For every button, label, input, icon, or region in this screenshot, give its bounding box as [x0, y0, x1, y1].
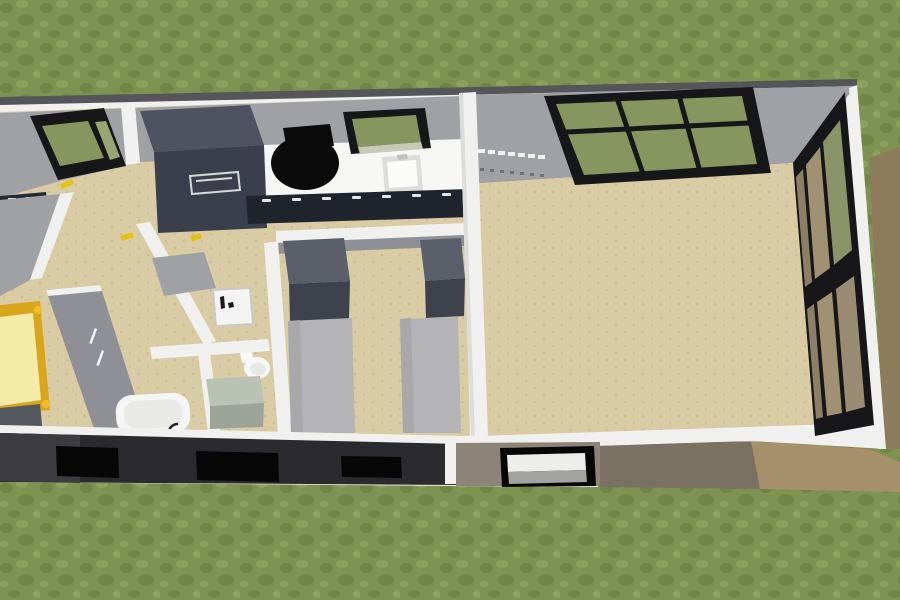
- wall-mark: [478, 149, 485, 153]
- kitchen-sink[interactable]: [382, 154, 423, 192]
- wardrobe-front: [289, 281, 350, 322]
- wall-dot: [520, 172, 524, 175]
- sink-window-glass: [352, 115, 421, 147]
- wardrobe-front: [425, 278, 465, 318]
- big-back-window[interactable]: [544, 87, 771, 185]
- vanity-top: [206, 376, 264, 406]
- wall-mark: [518, 153, 525, 157]
- bed-1[interactable]: [288, 318, 355, 434]
- front-window-3: [341, 456, 402, 478]
- floor-plan-3d-canvas[interactable]: [0, 0, 900, 600]
- bed-knob: [34, 306, 42, 314]
- wall-mark: [538, 155, 545, 159]
- wall-mark: [508, 152, 515, 156]
- washer-control: [228, 302, 234, 308]
- bed-knob: [42, 400, 50, 408]
- wall-mark: [498, 151, 505, 155]
- tall-cabinet-top: [140, 105, 264, 152]
- cabinet-handle: [322, 197, 331, 200]
- front-window-white[interactable]: [500, 446, 596, 487]
- toilet-seat: [250, 363, 266, 376]
- front-window-2: [196, 451, 279, 482]
- chair-seat: [271, 136, 339, 190]
- cabinet-handle: [262, 199, 271, 202]
- wall-dot: [500, 170, 504, 173]
- vanity[interactable]: [206, 376, 264, 429]
- cabinet-handle: [382, 195, 391, 198]
- front-window-pane-top: [507, 453, 586, 472]
- cabinet-handle: [442, 193, 451, 196]
- sink-window[interactable]: [343, 108, 431, 154]
- living-room-floor: [468, 163, 838, 436]
- wall-dot: [530, 173, 534, 176]
- sink-faucet: [397, 154, 408, 160]
- cabinet-handle: [412, 194, 421, 197]
- wardrobe-1[interactable]: [283, 238, 350, 322]
- wardrobe-top: [283, 238, 350, 284]
- wall-mark: [528, 154, 535, 158]
- wardrobe-top: [420, 238, 465, 281]
- cabinet-handle: [352, 196, 361, 199]
- wall-mark: [488, 150, 495, 154]
- cabinet-handle: [292, 198, 301, 201]
- wall-dot: [480, 168, 484, 171]
- deck-front: [597, 441, 760, 489]
- bed-2[interactable]: [400, 317, 461, 433]
- front-window-1: [56, 446, 119, 478]
- wall-dot: [540, 174, 544, 177]
- big-window-glass: [556, 96, 757, 175]
- vanity-front: [210, 403, 264, 429]
- wardrobe-2[interactable]: [420, 238, 465, 318]
- washing-machine[interactable]: [213, 288, 253, 326]
- front-wall-divider-sliver: [445, 443, 456, 484]
- wall-dot: [490, 169, 494, 172]
- sink-basin: [387, 160, 418, 188]
- front-window-pane-bottom: [508, 470, 587, 484]
- wall-dot: [510, 171, 514, 174]
